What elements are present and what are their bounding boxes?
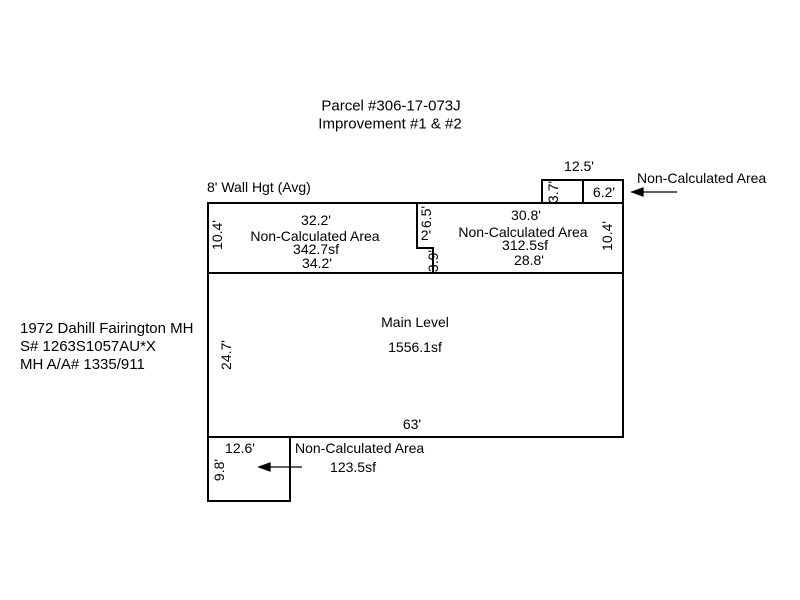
bottom-addition-area-sf-label: 123.5sf (330, 460, 376, 474)
top-addition-callout-label: Non-Calculated Area (637, 171, 766, 185)
bottom-addition-height-label: 9.8' (212, 459, 226, 481)
main-level-label: Main Level (381, 315, 449, 329)
upper-left-area-sf-label: 342.7sf (293, 242, 339, 256)
wall-height-label: 8' Wall Hgt (Avg) (207, 180, 311, 194)
top-addition-width-label: 12.5' (564, 159, 594, 173)
parcel-improvement-sketch: Parcel #306-17-073J Improvement #1 & #2 … (0, 0, 800, 600)
property-info-serial: S# 1263S1057AU*X (20, 338, 193, 356)
notch-lower-height-label: 3.9' (426, 250, 440, 272)
sketch-line-drawing (0, 0, 800, 600)
property-info-model: 1972 Dahill Fairington MH (20, 320, 193, 338)
notch-step-width-label: 2' (421, 228, 431, 242)
bottom-callout-arrow-head (259, 463, 270, 471)
top-callout-arrow-head (632, 188, 643, 196)
bottom-addition-width-label: 12.6' (225, 441, 255, 455)
bottom-addition-callout-label: Non-Calculated Area (295, 441, 424, 455)
property-info-account: MH A/A# 1335/911 (20, 356, 193, 374)
parcel-title: Parcel #306-17-073J (321, 99, 460, 114)
upper-right-bottom-width-label: 28.8' (514, 253, 544, 267)
upper-left-side-height-label: 10.4' (210, 220, 224, 250)
upper-right-top-width-label: 30.8' (511, 208, 541, 222)
main-level-bottom-width-label: 63' (403, 417, 421, 431)
property-info-block: 1972 Dahill Fairington MH S# 1263S1057AU… (20, 320, 193, 374)
upper-right-area-sf-label: 312.5sf (502, 238, 548, 252)
notch-upper-height-label: 6.5' (419, 206, 433, 228)
upper-left-top-width-label: 32.2' (301, 213, 331, 227)
top-addition-cell-width-label: 6.2' (593, 185, 615, 199)
upper-right-side-height-label: 10.4' (600, 221, 614, 251)
improvement-subtitle: Improvement #1 & #2 (318, 117, 461, 132)
upper-left-bottom-width-label: 34.2' (302, 256, 332, 270)
main-level-area-sf-label: 1556.1sf (388, 340, 442, 354)
top-addition-height-label: 3.7' (546, 181, 560, 203)
main-level-side-height-label: 24.7' (219, 340, 233, 370)
